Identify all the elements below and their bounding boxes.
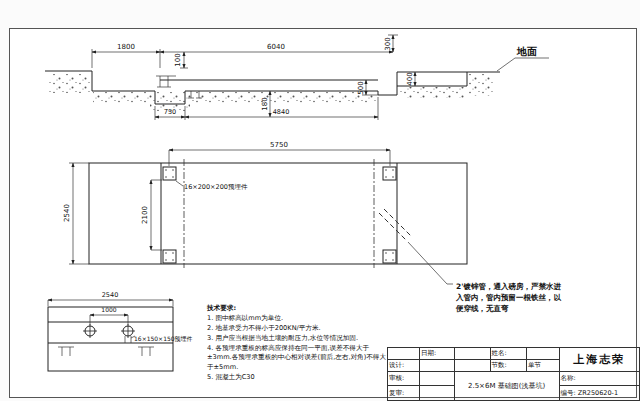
tech-title: 技术要求: — [207, 304, 387, 314]
tb-number-value: ZR250620-1 — [578, 389, 618, 397]
pipe-note-line1: 2'镀锌管，通入磅房，严禁水进 — [456, 282, 562, 291]
embedded-plate — [163, 250, 176, 263]
anchor-marks — [58, 347, 154, 356]
plan-inner-lines — [161, 163, 397, 264]
section-view: 1800 6040 100 300 400 500 180 750 4840 地… — [45, 35, 549, 120]
tb-empty — [419, 386, 454, 401]
dim-5750: 5750 — [270, 141, 288, 149]
technical-requirements: 技术要求: 1. 图中标高以mm为单位. 2. 地基承受力不得小于200KN/平… — [207, 304, 387, 383]
tb-design-label: 设计: — [388, 360, 420, 372]
tech-item: 1. 图中标高以mm为单位. — [207, 314, 387, 324]
galvanized-pipe — [379, 209, 412, 241]
tb-empty — [454, 348, 490, 360]
embedded-plate — [383, 167, 396, 180]
tb-recheck-label: 复审: — [388, 386, 420, 401]
pipe-note-line3: 便穿线，无直弯 — [455, 304, 509, 313]
tech-item: 4. 各预埋承重板的标高应保持在同一平面,误差不得大于±3mm.各预埋承重板的中… — [207, 344, 387, 374]
dim-100: 100 — [174, 53, 182, 66]
dim-1000: 1000 — [101, 306, 116, 313]
tb-number-label: 编号: — [561, 389, 576, 397]
dim-6040: 6040 — [267, 43, 285, 51]
tb-empty — [454, 360, 490, 372]
dim-400: 400 — [406, 72, 414, 85]
soil-hatch-far-right — [467, 74, 495, 96]
dim-4840: 4840 — [273, 108, 290, 116]
soil-hatch-bottom — [93, 92, 377, 103]
tb-empty — [527, 348, 560, 360]
tb-review-label: 审核: — [388, 372, 420, 386]
dim-180: 180 — [261, 97, 269, 110]
ground-leader — [497, 58, 549, 71]
dim-2540-plan: 2540 — [63, 204, 71, 222]
plan-plate-label: 16×200×200预埋件 — [184, 183, 248, 191]
pipe-note-leader — [408, 242, 453, 284]
soil-hatch-left — [48, 74, 91, 93]
plan-view: 5750 2540 2100 16×200×200预埋件 2'镀锌管，通入磅房，… — [63, 141, 562, 313]
tech-item: 3. 用户应当根据当地土壤的耐压力,水位等情况加固. — [207, 334, 387, 344]
embedded-plate — [383, 250, 396, 263]
tech-item: 5. 混凝土为C30 — [207, 373, 387, 383]
dim-500: 500 — [357, 81, 365, 94]
drawing-title: 2.5×6M 基础图(浅基坑) — [454, 372, 559, 401]
soil-hatch-right — [399, 87, 465, 98]
tb-sections-value: 单节 — [527, 360, 560, 372]
end-view: 2540 1000 16×150×150预埋件 — [48, 291, 193, 371]
dim-1800: 1800 — [117, 43, 135, 51]
tb-empty — [419, 360, 454, 372]
dim-2100: 2100 — [141, 206, 149, 224]
embedded-plate — [163, 167, 176, 180]
tb-date-label: 日期: — [419, 348, 454, 360]
plate-symbol — [83, 324, 97, 338]
company-name: 上海志荣 — [559, 348, 639, 372]
tb-sections-label: 节数: — [490, 360, 526, 372]
plate-symbol — [121, 324, 135, 338]
dim-2540-end: 2540 — [102, 291, 119, 299]
tb-name-label: 姓名: — [490, 348, 526, 360]
tech-item: 2. 地基承受力不得小于200KN/平方米. — [207, 324, 387, 334]
tb-empty — [388, 348, 420, 360]
title-block: 日期: 姓名: 上海志荣 设计: 节数: 单节 审核: 2.5×6M 基础图(浅… — [387, 347, 640, 401]
dim-750: 750 — [164, 108, 176, 116]
dim-300: 300 — [384, 37, 392, 50]
tb-title-label: 名称: — [559, 372, 639, 386]
pipe-note-line2: 入管内，管内预留一根铁丝，以 — [455, 293, 562, 302]
plan-centerlines — [184, 159, 374, 268]
drawing-number: 编号: ZR250620-1 — [559, 386, 639, 401]
end-plate-label: 16×150×150预埋件 — [134, 335, 193, 343]
ground-label: 地面 — [516, 46, 537, 57]
tb-empty — [419, 372, 454, 386]
